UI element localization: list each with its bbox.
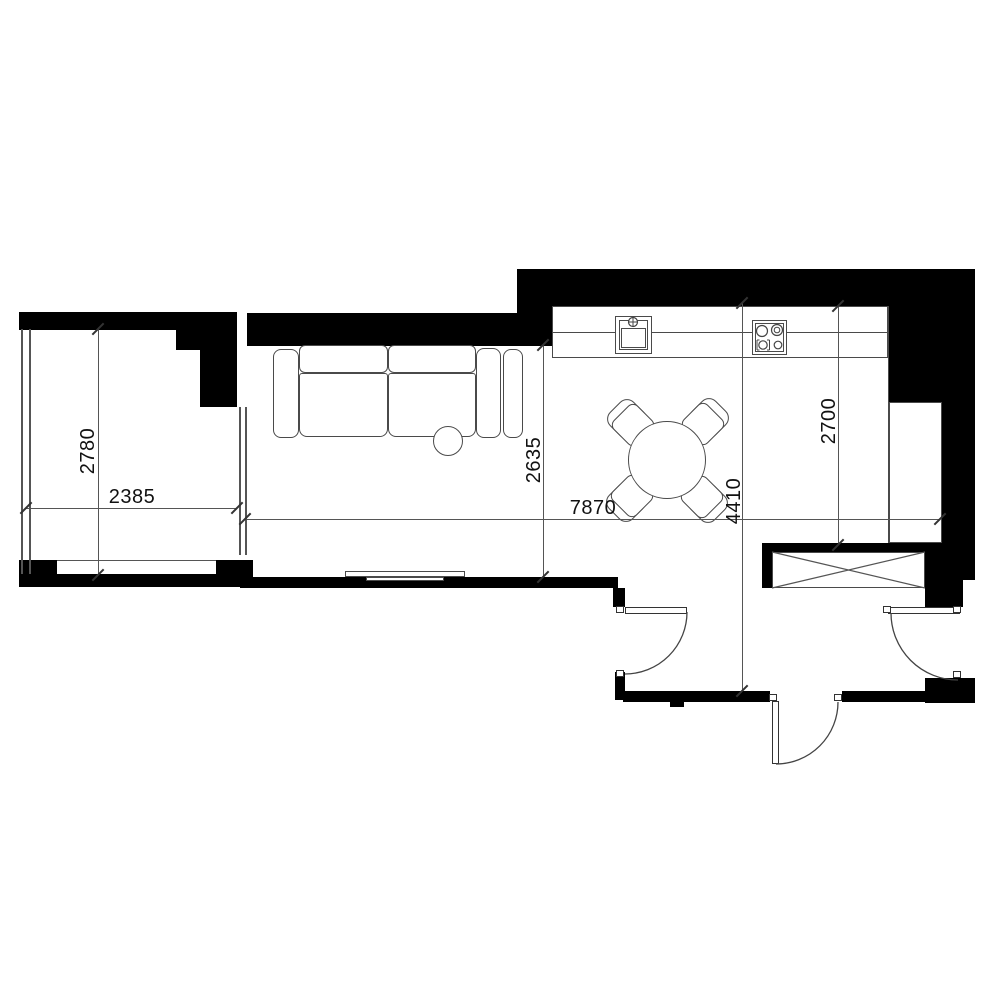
floor-plan-canvas: 2780 2385 2635 7870 4410 2700	[0, 0, 1000, 1000]
burner-top-right-inner	[774, 327, 780, 333]
burner-bottom-left	[759, 341, 767, 349]
hall-right-door-arc	[891, 613, 958, 680]
shaft-x-diagonal	[772, 552, 925, 588]
burner-bottom-right	[774, 341, 782, 349]
hall-left-door-arc	[625, 612, 687, 674]
dim-label-kitchen-height: 2700	[817, 379, 841, 463]
entry-door-arc	[776, 702, 838, 764]
dim-label-balcony-height: 2780	[76, 409, 100, 493]
dim-label-main-width: 7870	[551, 496, 635, 520]
burner-top-left	[757, 326, 768, 337]
dim-label-living-height: 2635	[522, 418, 546, 502]
burner-top-right-outer	[772, 325, 783, 336]
dim-label-balcony-width: 2385	[90, 485, 174, 509]
dim-label-right-wing-height: 4410	[722, 459, 746, 543]
